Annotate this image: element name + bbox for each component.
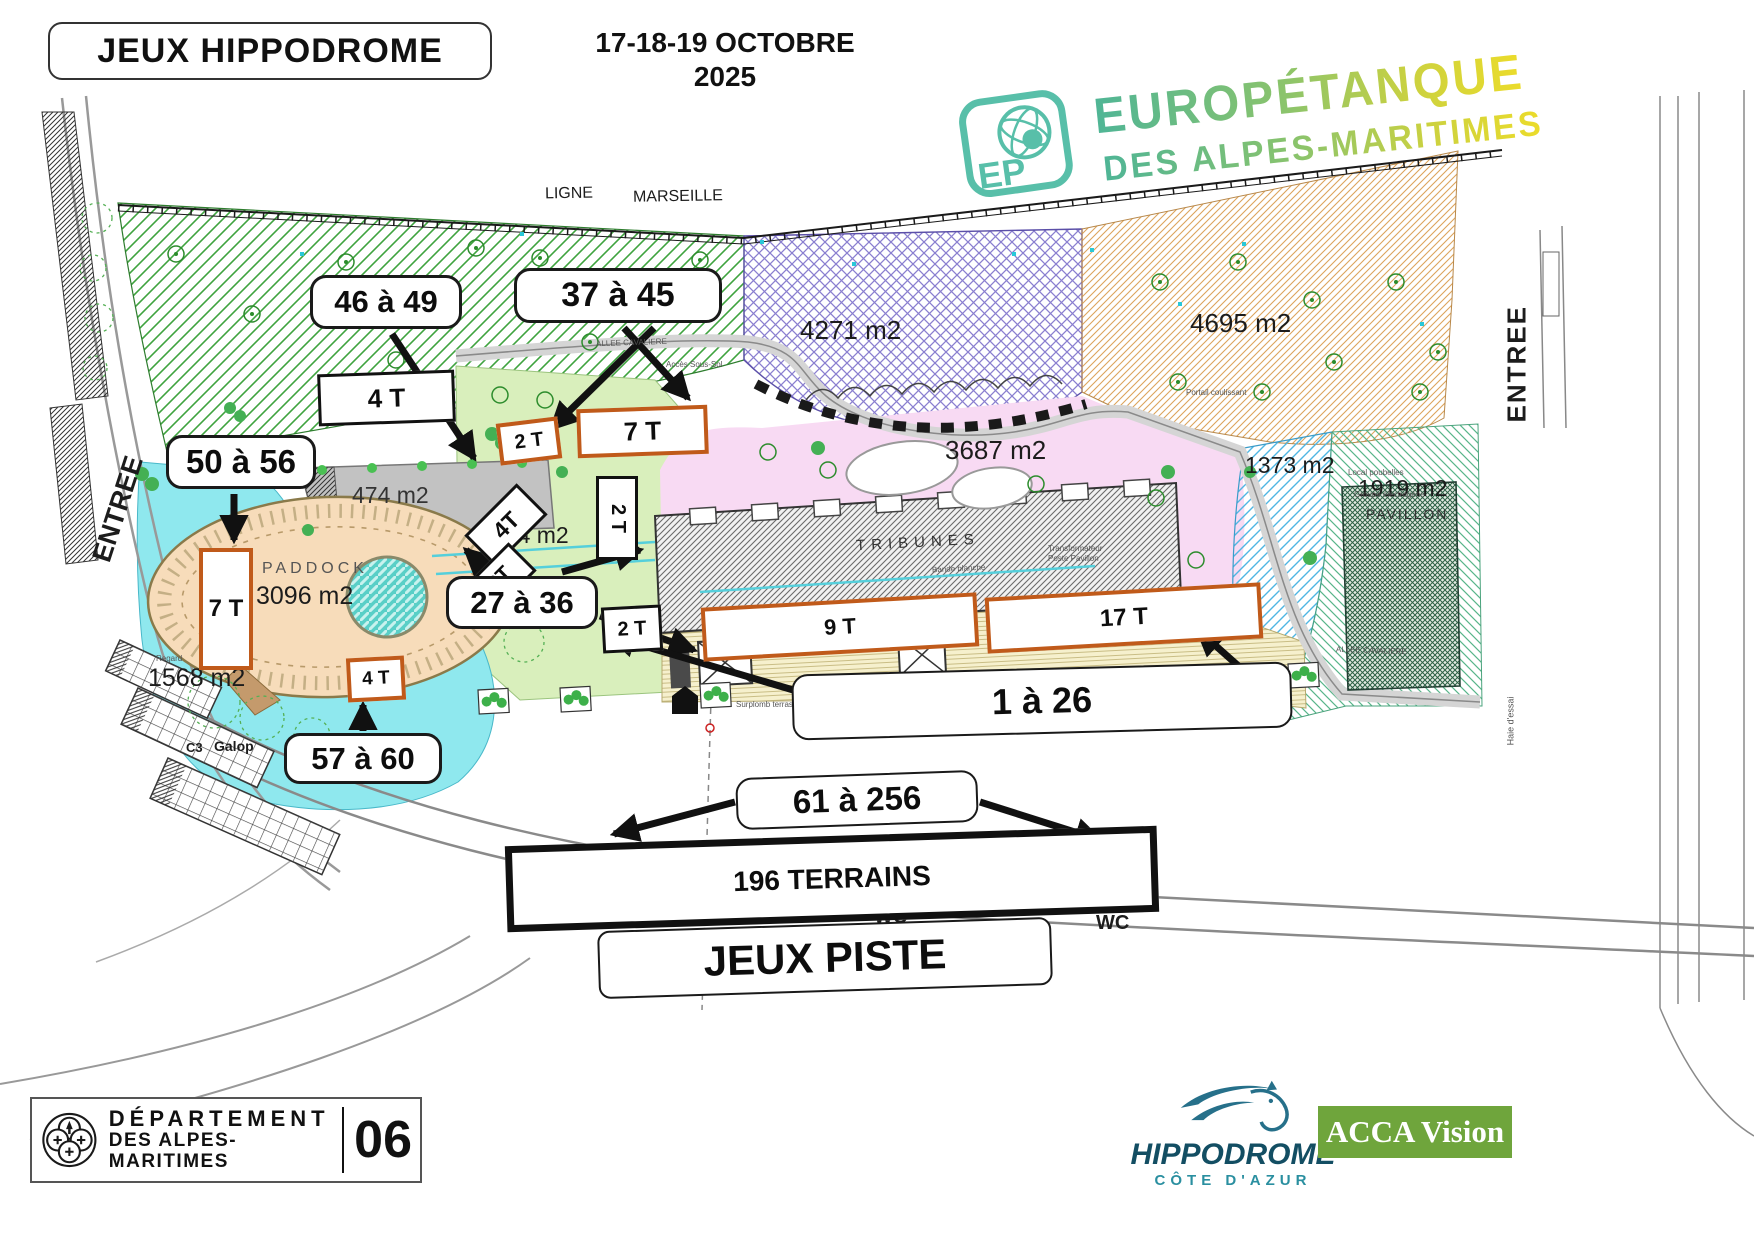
groupe-electrogene-label: Groupe électrogène: [1354, 490, 1425, 499]
callout-37-45: 37 à 45: [514, 268, 722, 323]
railway-label-marseille: MARSEILLE: [633, 187, 723, 207]
europetanque-logo: EP EUROPÉTANQUE DES ALPES-MARITIMES: [940, 55, 1754, 230]
acces-sous-sol-label: Accès Sous-Sol: [666, 360, 722, 369]
area-3096: 3096 m2: [256, 582, 353, 611]
callout-61-256: 61 à 256: [735, 770, 979, 830]
local-poubelles-label: Local poubelles: [1348, 468, 1404, 477]
entrance-right-label: ENTREE: [1502, 313, 1533, 423]
page-title-text: JEUX HIPPODROME: [97, 32, 443, 71]
paddock-label: PADDOCK: [262, 560, 368, 578]
galop-label: Galop: [214, 738, 254, 754]
area-1373: 1373 m2: [1245, 452, 1335, 479]
poste-pavillon-label: Poste Pavillon: [1048, 554, 1099, 563]
page-title: JEUX HIPPODROME: [48, 22, 492, 80]
callout-27-36: 27 à 36: [446, 576, 598, 629]
haie-essai-label: Haie d'essai: [1505, 697, 1515, 746]
event-date: 17-18-19 OCTOBRE 2025: [558, 26, 892, 93]
terrain-box-2t-south: 2 T: [601, 604, 663, 653]
hippodrome-logo-subtext: CÔTE D'AZUR: [1108, 1172, 1358, 1189]
europetanque-wordmark: EUROPÉTANQUE DES ALPES-MARITIMES: [1091, 55, 1545, 189]
callout-46-49: 46 à 49: [310, 275, 462, 329]
area-4695: 4695 m2: [1190, 308, 1291, 339]
departement-text-1: DÉPARTEMENT: [109, 1107, 330, 1131]
area-4271: 4271 m2: [800, 315, 901, 346]
wc-label-4: WC: [1096, 912, 1129, 935]
terrain-box-7t-paddock: 7 T: [199, 548, 253, 670]
ep-badge-text: EP: [975, 150, 1028, 197]
callout-jeux-piste: JEUX PISTE: [597, 917, 1053, 999]
area-474: 474 m2: [352, 482, 429, 509]
portail-coulissant-label: Portail coulissant: [1186, 388, 1246, 397]
transformateur-label: Transformateur: [1048, 544, 1102, 553]
embankment-hatch: [42, 112, 108, 564]
departement-number: 06: [354, 1110, 412, 1170]
regard-label: Regard: [156, 654, 182, 663]
departement-06-logo: DÉPARTEMENT DES ALPES-MARITIMES 06: [30, 1097, 422, 1183]
terrain-box-4t-north: 4 T: [317, 370, 456, 427]
terrain-box-2t-center-north: 2 T: [496, 416, 563, 465]
departement-text-2: DES ALPES-MARITIMES: [109, 1131, 330, 1173]
callout-1-26: 1 à 26: [791, 661, 1293, 740]
ep-badge-icon: EP: [960, 91, 1072, 198]
railway-label-ligne: LIGNE: [545, 185, 593, 204]
area-pavillon: PAVILLON: [1366, 506, 1448, 522]
callout-57-60: 57 à 60: [284, 733, 442, 784]
terrain-box-4t-south: 4 T: [346, 656, 406, 703]
acca-vision-text: ACCA Vision: [1326, 1114, 1504, 1150]
event-date-line2: 2025: [558, 60, 892, 94]
departement-emblem-icon: [40, 1105, 99, 1175]
event-date-line1: 17-18-19 OCTOBRE: [558, 26, 892, 60]
site-plan-page: JEUX HIPPODROME 17-18-19 OCTOBRE 2025 EP…: [0, 0, 1754, 1240]
terrain-box-7t-center: 7 T: [576, 405, 709, 459]
terrain-box-2t-vertical: 2 T: [596, 476, 638, 560]
area-3687: 3687 m2: [945, 435, 1046, 466]
divider: [342, 1107, 344, 1173]
hippodrome-horse-icon: [1165, 1078, 1305, 1136]
c3-label: C3: [186, 740, 203, 755]
callout-50-56: 50 à 56: [166, 435, 316, 489]
acca-vision-logo: ACCA Vision: [1318, 1106, 1512, 1158]
terrain-box-2t-vertical-text: 2 T: [606, 504, 629, 533]
